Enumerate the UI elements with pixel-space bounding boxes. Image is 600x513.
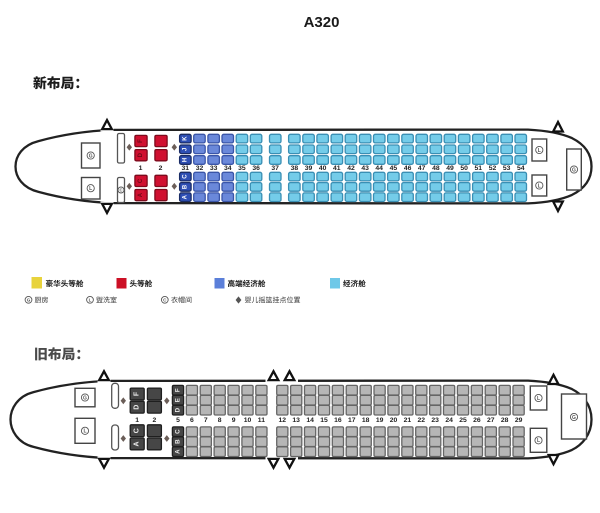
svg-text:18: 18: [362, 417, 370, 424]
svg-text:11: 11: [258, 417, 265, 424]
svg-text:8: 8: [218, 417, 222, 424]
svg-text:D: D: [134, 405, 141, 410]
svg-text:13: 13: [292, 417, 300, 424]
svg-text:16: 16: [334, 417, 342, 424]
svg-text:G: G: [27, 298, 31, 303]
svg-text:23: 23: [431, 417, 439, 424]
svg-text:F: F: [134, 391, 141, 396]
svg-text:G: G: [83, 395, 87, 401]
svg-text:L: L: [538, 148, 541, 154]
svg-text:36: 36: [252, 165, 260, 172]
svg-text:35: 35: [238, 165, 246, 172]
svg-text:12: 12: [279, 417, 287, 424]
svg-text:33: 33: [210, 165, 218, 172]
svg-text:A: A: [182, 194, 188, 199]
svg-text:C: C: [138, 178, 144, 183]
svg-text:19: 19: [376, 417, 384, 424]
svg-text:20: 20: [390, 417, 398, 424]
svg-text:H: H: [182, 158, 188, 162]
svg-text:22: 22: [418, 417, 426, 424]
svg-text:1: 1: [139, 165, 143, 172]
svg-text:31: 31: [182, 165, 190, 172]
svg-text:26: 26: [473, 417, 481, 424]
svg-text:A: A: [138, 192, 144, 197]
svg-text:10: 10: [244, 417, 252, 424]
svg-text:7: 7: [204, 417, 208, 424]
svg-text:G: G: [572, 415, 576, 421]
svg-text:C: C: [119, 188, 122, 193]
svg-text:6: 6: [190, 417, 194, 424]
svg-text:24: 24: [445, 417, 453, 424]
svg-text:L: L: [89, 186, 92, 192]
svg-text:21: 21: [404, 417, 412, 424]
svg-text:53: 53: [503, 165, 511, 172]
svg-text:51: 51: [475, 165, 483, 172]
svg-text:42: 42: [347, 165, 355, 172]
svg-text:C: C: [134, 428, 141, 433]
svg-text:2: 2: [159, 165, 163, 172]
svg-text:F: F: [138, 139, 144, 143]
svg-text:D: D: [175, 407, 182, 412]
svg-text:25: 25: [459, 417, 467, 424]
svg-text:47: 47: [418, 165, 426, 172]
svg-text:9: 9: [232, 417, 236, 424]
svg-text:38: 38: [291, 165, 299, 172]
svg-text:K: K: [182, 136, 188, 141]
svg-text:28: 28: [501, 417, 509, 424]
svg-text:40: 40: [319, 165, 327, 172]
svg-text:A: A: [134, 441, 141, 446]
svg-text:54: 54: [517, 165, 525, 172]
svg-text:48: 48: [432, 165, 440, 172]
svg-text:A: A: [175, 449, 182, 454]
svg-text:45: 45: [390, 165, 398, 172]
svg-text:39: 39: [305, 165, 313, 172]
svg-text:G: G: [89, 153, 93, 159]
svg-text:32: 32: [196, 165, 204, 172]
svg-text:27: 27: [487, 417, 495, 424]
svg-text:43: 43: [361, 165, 369, 172]
svg-text:29: 29: [515, 417, 523, 424]
svg-text:A320: A320: [304, 14, 340, 31]
svg-text:G: G: [572, 167, 576, 173]
svg-text:46: 46: [404, 165, 412, 172]
svg-text:37: 37: [271, 165, 279, 172]
svg-text:L: L: [537, 396, 540, 402]
svg-text:2: 2: [153, 417, 157, 424]
svg-text:41: 41: [333, 165, 341, 172]
svg-text:L: L: [537, 438, 540, 444]
svg-text:50: 50: [460, 165, 468, 172]
svg-text:34: 34: [224, 165, 232, 172]
svg-text:15: 15: [320, 417, 328, 424]
svg-text:49: 49: [446, 165, 454, 172]
svg-text:D: D: [138, 152, 144, 157]
svg-text:L: L: [89, 298, 92, 303]
svg-text:17: 17: [348, 417, 356, 424]
svg-text:E: E: [175, 398, 182, 402]
svg-text:C: C: [182, 174, 188, 179]
svg-text:5: 5: [176, 417, 180, 424]
svg-text:L: L: [83, 429, 86, 435]
svg-text:52: 52: [489, 165, 497, 172]
svg-text:14: 14: [306, 417, 314, 424]
svg-text:B: B: [182, 184, 188, 189]
svg-text:44: 44: [375, 165, 383, 172]
svg-text:L: L: [538, 183, 541, 189]
svg-text:1: 1: [135, 417, 139, 424]
svg-text:C: C: [175, 429, 182, 434]
svg-text:F: F: [175, 388, 182, 392]
svg-text:J: J: [182, 148, 188, 151]
svg-text:B: B: [175, 439, 182, 444]
